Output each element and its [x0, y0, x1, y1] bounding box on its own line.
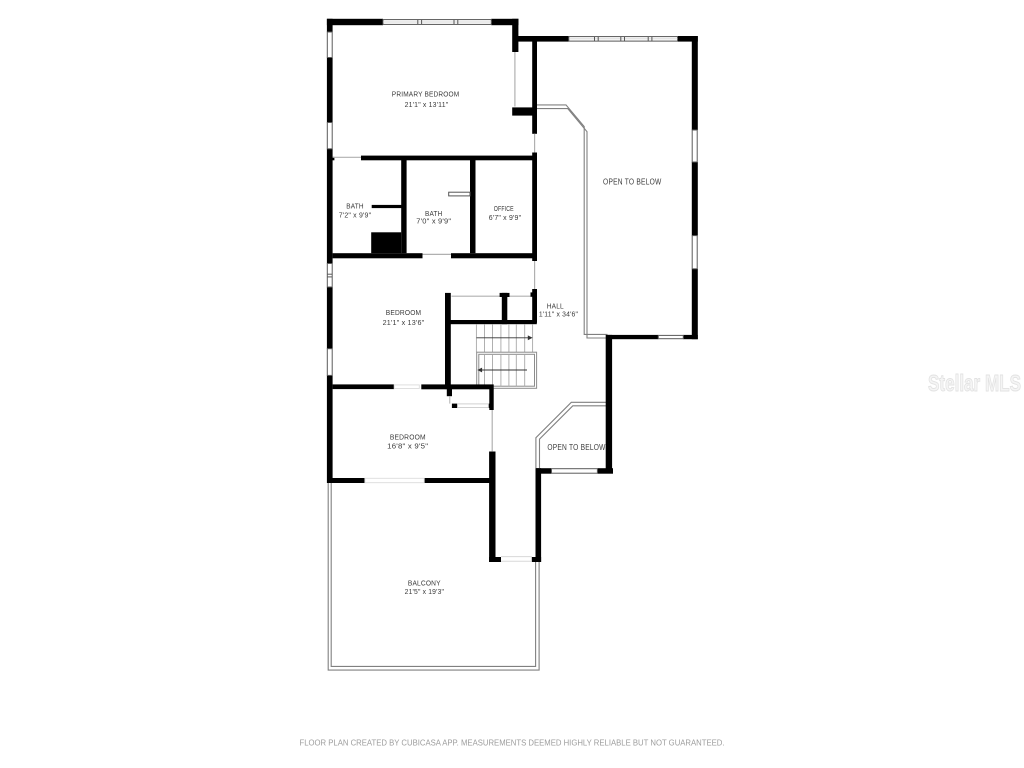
svg-text:21'5" x 19'3": 21'5" x 19'3": [405, 587, 445, 596]
svg-text:21'1" x 13'6": 21'1" x 13'6": [383, 318, 425, 327]
svg-text:Stellar MLS: Stellar MLS: [928, 370, 1021, 396]
svg-text:16'8" x 9'5": 16'8" x 9'5": [387, 441, 428, 450]
svg-text:6'7" x 9'9": 6'7" x 9'9": [489, 213, 522, 222]
svg-text:BEDROOM: BEDROOM: [386, 308, 422, 317]
svg-text:21'1" x 13'11": 21'1" x 13'11": [405, 100, 449, 109]
svg-text:7'2" x 9'9": 7'2" x 9'9": [339, 210, 372, 219]
svg-text:OFFICE: OFFICE: [494, 204, 514, 213]
svg-text:OPEN TO BELOW: OPEN TO BELOW: [603, 177, 662, 187]
svg-text:OPEN TO BELOW: OPEN TO BELOW: [547, 442, 606, 452]
svg-text:FLOOR PLAN CREATED BY CUBICASA: FLOOR PLAN CREATED BY CUBICASA APP. MEAS…: [300, 738, 725, 747]
svg-text:1'11" x 34'6": 1'11" x 34'6": [539, 310, 578, 319]
svg-text:PRIMARY BEDROOM: PRIMARY BEDROOM: [392, 90, 460, 99]
svg-text:BEDROOM: BEDROOM: [390, 433, 426, 442]
svg-text:7'0" x 9'9": 7'0" x 9'9": [416, 217, 451, 226]
